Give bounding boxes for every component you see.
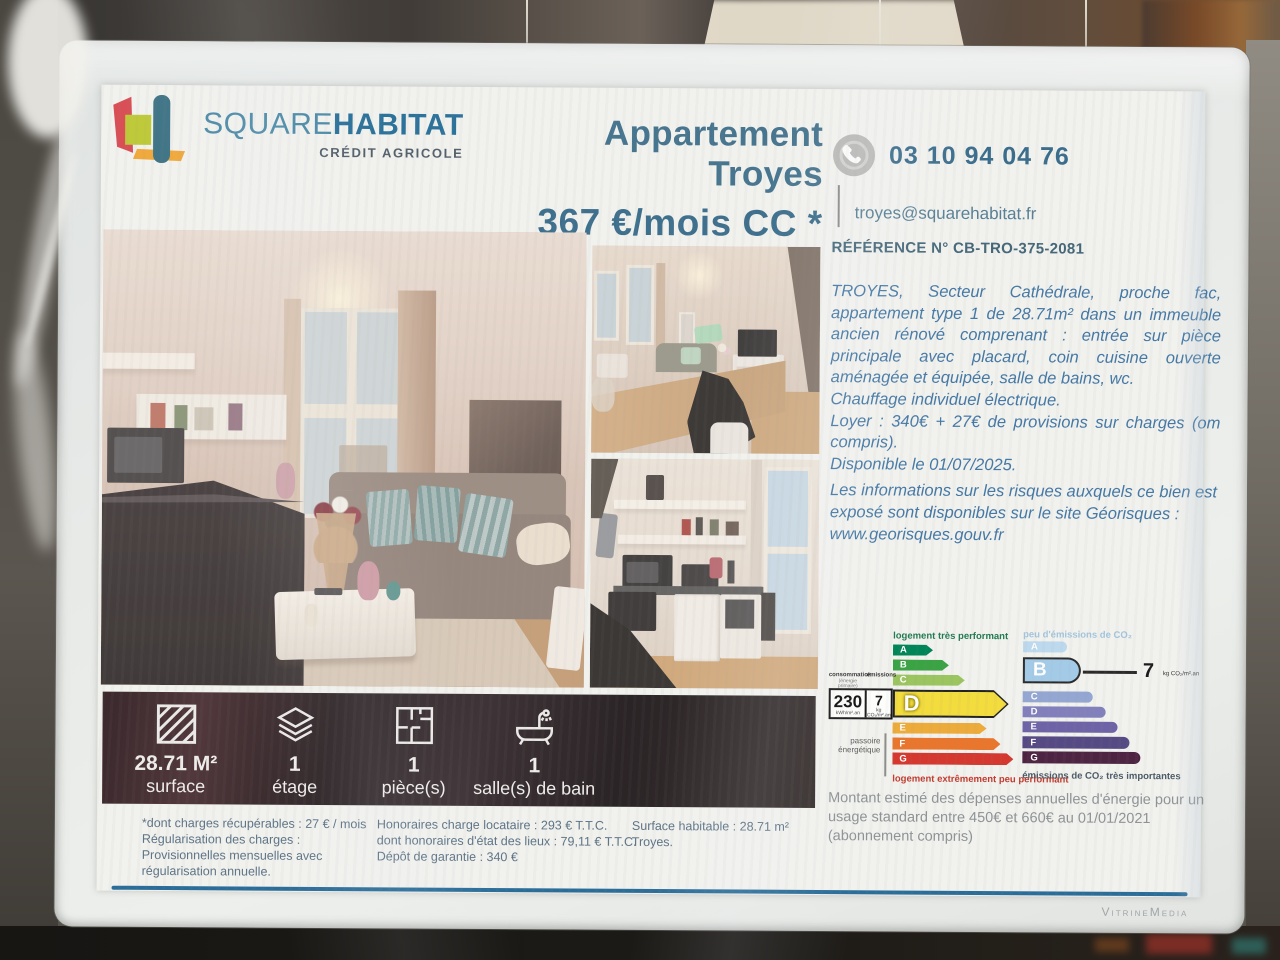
co2-bar-c: C (1023, 691, 1093, 702)
dark-appliance (761, 592, 775, 640)
wall-shelf (618, 534, 746, 544)
oven-door (627, 562, 659, 583)
co2-value: 7 (1143, 660, 1154, 683)
phone-number: 03 10 94 04 76 (889, 141, 1070, 171)
footnote-surface: Surface habitable : 28.71 m² Troyes. (632, 818, 789, 851)
footnote-line: régularisation annuelle. (142, 863, 367, 880)
dpe-bar-g: G (892, 752, 1013, 765)
emissions-value: 7 (867, 693, 891, 707)
co2-unit: kg CO₂/m².an (1163, 671, 1199, 677)
reflection-teal (1232, 938, 1266, 954)
description-paragraph: Disponible le 01/07/2025. (830, 454, 1220, 478)
agency-logo-text: SQUAREHABITAT CRÉDIT AGRICOLE (203, 93, 464, 161)
square-habitat-logo-icon (111, 93, 191, 167)
shelf-item (696, 518, 703, 535)
agency-logo: SQUAREHABITAT CRÉDIT AGRICOLE (111, 93, 464, 169)
surface-hatch-icon (153, 701, 199, 747)
contact-divider (838, 185, 840, 227)
vitrine-display-frame: SQUAREHABITAT CRÉDIT AGRICOLE Appartemen… (54, 40, 1249, 933)
co2-bar-e: E (1023, 721, 1118, 733)
photo-living-room (101, 230, 587, 688)
reflection-red (1146, 934, 1212, 954)
bathtub-icon (511, 703, 557, 749)
window-edge-right (1246, 40, 1280, 940)
window-mullion (764, 547, 812, 554)
energy-cost-estimate: Montant estimé des dépenses annuelles d'… (828, 789, 1222, 848)
microwave-door (114, 437, 163, 474)
feature-value: 28.71 M² (116, 752, 235, 777)
property-city: Troyes (501, 153, 823, 195)
storefront-photo: SQUAREHABITAT CRÉDIT AGRICOLE Appartemen… (0, 0, 1280, 960)
brand-name-habitat: HABITAT (333, 108, 464, 142)
feature-value: 1 (235, 752, 354, 777)
phone-row: 03 10 94 04 76 (832, 133, 1070, 178)
co2-top-label: peu d'émissions de CO₂ (1023, 629, 1132, 641)
dpe-bar-f: F (892, 737, 1000, 750)
remote-control (314, 588, 343, 595)
mint-pillow (681, 348, 702, 365)
footnote-line: Troyes. (632, 834, 789, 851)
photo-dining-area (591, 246, 820, 454)
listing-description: TROYES, Secteur Cathédrale, proche fac, … (830, 281, 1222, 548)
footnote-charges: *dont charges récupérables : 27 € / mois… (142, 815, 367, 880)
listing-reference: RÉFÉRENCE N° CB-TRO-375-2081 (831, 239, 1084, 258)
striped-pillow (458, 493, 514, 559)
hanging-wire (879, 0, 881, 52)
feature-label: étage (235, 776, 354, 798)
description-paragraph: TROYES, Secteur Cathédrale, proche fac, … (831, 281, 1222, 391)
feature-bathrooms: 1 salle(s) de bain (473, 701, 596, 800)
co2-bar-f: F (1022, 736, 1129, 749)
glass-cup (304, 604, 319, 627)
pink-flowers (276, 463, 296, 500)
feature-rooms: 1 pièce(s) (354, 700, 474, 799)
description-paragraph: Les informations sur les risques auxquel… (830, 481, 1220, 527)
vitrinemedia-watermark: VitrineMedia (1101, 905, 1188, 920)
candle (386, 582, 401, 600)
mini-fridge (674, 594, 720, 661)
co2-bar-d: D (1023, 706, 1106, 718)
dark-panel (725, 599, 755, 629)
co2-pointer-line (1083, 671, 1137, 674)
footnote-line: Dépôt de garantie : 340 € (377, 848, 637, 866)
footnote-line: Provisionnelles mensuelles avec (142, 847, 367, 864)
agency-email: troyes@squarehabitat.fr (855, 203, 1037, 224)
footnote-line: *dont charges récupérables : 27 € / mois (142, 815, 367, 832)
shelf-item (151, 403, 166, 430)
co2-bar-a: A (1023, 641, 1067, 652)
property-type: Appartement (501, 113, 823, 155)
co2-bottom-label: émissions de CO₂ très importantes (1022, 770, 1180, 782)
faucet (727, 560, 734, 583)
phone-icon (832, 133, 876, 177)
white-chair (710, 422, 749, 453)
shelf-item (228, 403, 243, 430)
footnote-line: dont honoraires d'état des lieux : 79,11… (377, 832, 637, 850)
footnote-line: Surface habitable : 28.71 m² (632, 818, 789, 835)
shelf-item (682, 519, 691, 535)
footnote-line: Régularisation des charges : (142, 831, 367, 848)
emissions-cell: 7 kg CO₂/m².an (867, 690, 891, 717)
description-paragraph: Loyer : 340€ + 27€ de provisions sur cha… (830, 411, 1220, 457)
dpe-bar-e: E (892, 722, 986, 734)
striped-pillow (414, 485, 461, 543)
listing-title: Appartement Troyes 367 €/mois CC * (500, 113, 823, 245)
feature-value: 1 (354, 753, 473, 778)
curtain (656, 263, 666, 350)
dpe-rating-letter: D (895, 691, 1007, 716)
window-mullion (300, 404, 402, 418)
description-paragraph: www.georisques.gouv.fr (830, 524, 1220, 548)
shelf-item (194, 408, 213, 431)
red-item (709, 558, 723, 579)
energy-sieve-label: passoire énergétique (832, 736, 880, 755)
pink-vase (357, 561, 379, 600)
floorplan-icon (391, 702, 437, 748)
shelf-item (175, 405, 187, 430)
footnote-line: Honoraires charge locataire : 293 € T.T.… (377, 816, 637, 834)
feature-label: pièce(s) (354, 777, 473, 799)
green-box (694, 323, 723, 343)
photo-kitchenette (590, 459, 819, 689)
shelf-item (725, 521, 739, 535)
television (738, 329, 777, 356)
reflection-orange (1095, 938, 1129, 952)
co2-bar-b-highlighted: B (1023, 657, 1081, 683)
kitchen-counter (101, 480, 305, 686)
ceiling-light (674, 250, 724, 300)
co2-rating-letter: B (1025, 659, 1079, 681)
energy-performance-section: logement très performant A B C D E F G c… (828, 627, 1230, 889)
footnote-fees: Honoraires charge locataire : 293 € T.T.… (377, 816, 637, 866)
emissions-header: émissions (867, 672, 896, 679)
feature-bar: 28.71 M² surface 1 étage (102, 692, 816, 808)
co2-bar-g: G (1022, 751, 1140, 764)
real-estate-poster: SQUAREHABITAT CRÉDIT AGRICOLE Appartemen… (97, 85, 1206, 898)
shelf-item (709, 519, 718, 535)
wall-shelf (614, 500, 746, 510)
radiator (596, 353, 628, 378)
description-paragraph: Chauffage individuel électrique. (830, 389, 1220, 413)
dpe-top-label: logement très performant (893, 630, 1008, 642)
wall-shelf (103, 352, 195, 368)
dpe-bar-b: B (893, 659, 949, 670)
floors-stack-icon (272, 702, 318, 748)
brand-subtitle: CRÉDIT AGRICOLE (203, 144, 463, 161)
feature-label: salle(s) de bain (473, 778, 595, 800)
dpe-bar-d-highlighted: D (893, 689, 1009, 718)
dpe-value-box: 230 kWh/m².an 7 kg CO₂/m².an (829, 688, 893, 719)
window (626, 264, 654, 345)
feature-surface: 28.71 M² surface (116, 699, 236, 798)
feature-value: 1 (473, 754, 595, 779)
flower-vase (715, 340, 733, 361)
consumption-unit: kWh/m².an (831, 711, 865, 716)
brand-name-square: SQUARE (203, 107, 333, 141)
dpe-bar-a: A (893, 644, 933, 655)
feature-label: surface (116, 776, 235, 798)
lantern (646, 475, 664, 500)
consumption-value: 230 (831, 693, 865, 710)
feature-list: 28.71 M² surface 1 étage (116, 699, 596, 800)
consumption-cell: 230 kWh/m².an (831, 690, 868, 717)
emissions-unit: kg CO₂/m².an (867, 708, 891, 718)
energy-sieve-bracket (884, 733, 886, 776)
plant (591, 378, 614, 411)
dpe-bar-c: C (893, 674, 965, 685)
feature-floor: 1 étage (235, 699, 355, 798)
window (594, 270, 620, 341)
